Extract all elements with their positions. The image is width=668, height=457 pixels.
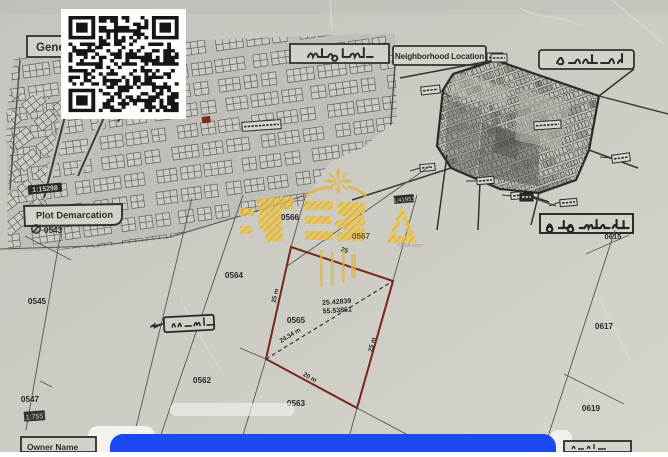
svg-text:0545: 0545: [28, 297, 47, 306]
svg-text:Owner Name: Owner Name: [27, 442, 79, 452]
svg-text:0547: 0547: [21, 395, 40, 404]
svg-text:0565: 0565: [287, 316, 306, 325]
svg-text:0562: 0562: [193, 376, 212, 385]
svg-text:Neighborhood Location: Neighborhood Location: [395, 52, 484, 61]
svg-text:0617: 0617: [595, 322, 614, 331]
svg-text:0567: 0567: [352, 232, 371, 241]
svg-text:0566: 0566: [281, 213, 300, 222]
svg-text:1:755: 1:755: [26, 413, 44, 421]
svg-text:0543: 0543: [44, 226, 63, 235]
svg-text:0564: 0564: [225, 271, 244, 280]
svg-text:TE3A.com: TE3A.com: [397, 243, 423, 249]
svg-text:0619: 0619: [582, 404, 601, 413]
svg-text:0615: 0615: [605, 232, 623, 241]
svg-text:Plot Demarcation: Plot Demarcation: [36, 209, 113, 221]
